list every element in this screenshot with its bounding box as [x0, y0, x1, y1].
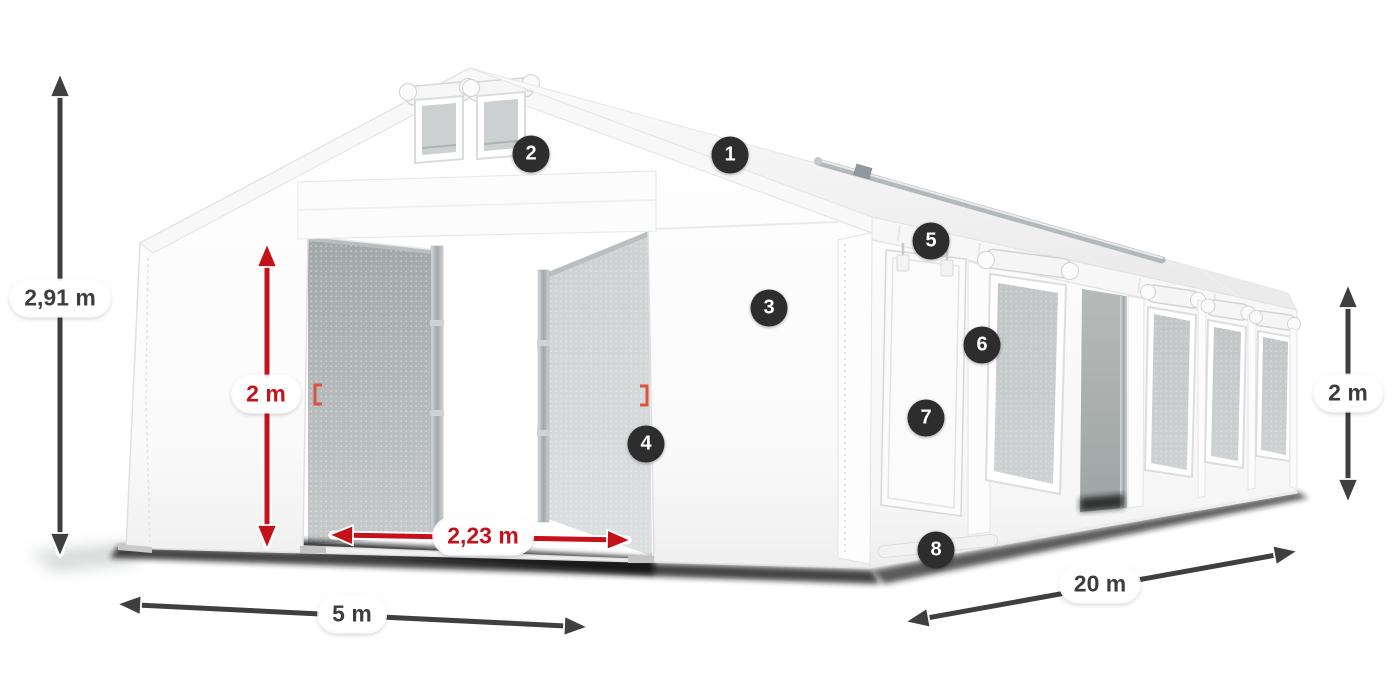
seam-strap — [1128, 296, 1144, 508]
dimension-label-total-height: 2,91 m — [11, 281, 109, 316]
seam-strap — [1198, 300, 1206, 498]
side-door — [881, 243, 966, 516]
dimension-label-door-height: 2 m — [233, 377, 299, 412]
seam-strap — [1248, 315, 1256, 490]
dimension-label-tent-width: 5 m — [319, 597, 385, 632]
open-side-doorway — [1080, 289, 1127, 512]
callout-badge-7[interactable]: 7 — [908, 400, 945, 437]
dimension-label-door-width: 2,23 m — [434, 519, 532, 554]
dimension-label-tent-length: 20 m — [1061, 567, 1139, 602]
callout-badge-1[interactable]: 1 — [712, 137, 749, 174]
interior-pole-left — [431, 246, 443, 540]
callout-badge-6[interactable]: 6 — [964, 327, 1001, 364]
tent-dimension-diagram: 1 2 3 4 5 6 7 8 2,91 m 2 m 2,23 m 5 m 20… — [0, 0, 1400, 700]
callout-badge-3[interactable]: 3 — [751, 290, 788, 327]
callout-badge-8[interactable]: 8 — [918, 532, 955, 569]
seam-strap — [1290, 328, 1297, 490]
tent-illustration — [0, 0, 1400, 700]
callout-badge-4[interactable]: 4 — [628, 426, 665, 463]
callout-badge-2[interactable]: 2 — [513, 136, 550, 173]
dimension-label-side-height: 2 m — [1315, 376, 1381, 411]
interior-pole-right — [538, 270, 549, 522]
callout-badge-5[interactable]: 5 — [913, 223, 950, 260]
